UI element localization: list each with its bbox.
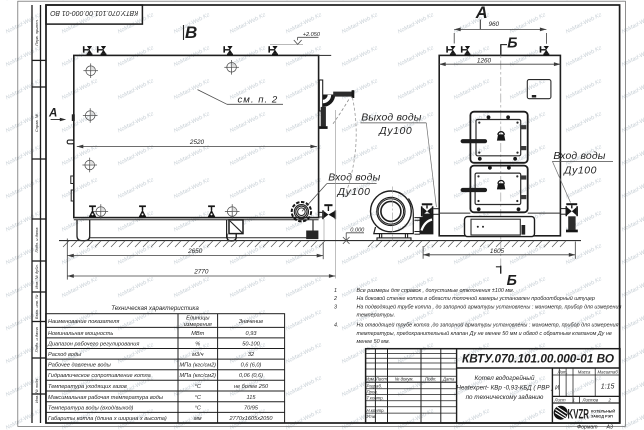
svg-text:Котел водогрейный: Котел водогрейный: [475, 374, 535, 382]
svg-text:Расход воды: Расход воды: [48, 352, 81, 358]
svg-text:960: 960: [488, 21, 499, 28]
svg-text:Н.контр.: Н.контр.: [367, 408, 385, 413]
svg-text:Габариты котла (длина х ширина: Габариты котла (длина х ширина х высота): [48, 416, 167, 422]
svg-text:Масштаб: Масштаб: [598, 369, 619, 374]
svg-text:На подводящей трубе котла ,: На подводящей трубе котла , до запорной …: [357, 303, 622, 310]
svg-text:температуры, предохранительный: температуры, предохранительный клапан Ду…: [357, 330, 612, 337]
svg-text:Максимальная рабочая температу: Максимальная рабочая температура воды: [48, 395, 163, 401]
svg-text:ЗАВОД РЭП: ЗАВОД РЭП: [591, 414, 613, 418]
svg-text:Выход воды: Выход воды: [361, 113, 422, 124]
svg-text:м3/ч: м3/ч: [192, 352, 203, 358]
svg-text:Справ. №: Справ. №: [34, 113, 39, 132]
svg-text:по техническому заданию: по техническому заданию: [466, 393, 544, 401]
svg-text:Гидравлическое сопротивление к: Гидравлическое сопротивление котла: [48, 373, 151, 379]
svg-text:Все размеры для справок , допу: Все размеры для справок , допустимые отк…: [357, 288, 515, 294]
svg-text:Лист: Лист: [554, 397, 566, 402]
svg-text:50-100: 50-100: [242, 341, 260, 347]
svg-text:Инв. № подл.: Инв. № подл.: [34, 378, 39, 403]
svg-text:не более 250: не более 250: [234, 384, 269, 390]
svg-text:32: 32: [248, 352, 255, 358]
svg-text:Утв.: Утв.: [367, 414, 377, 419]
svg-text:Heatexpert- КВр -0,93-КБД ( РВ: Heatexpert- КВр -0,93-КБД ( РВР ) И: [457, 384, 560, 391]
svg-text:менее 50 мм.: менее 50 мм.: [357, 339, 391, 345]
svg-text:2770х1605х2050: 2770х1605х2050: [229, 416, 274, 422]
svg-text:0,06 (0,6): 0,06 (0,6): [239, 373, 263, 379]
svg-text:На отводящей трубе котла ,до з: На отводящей трубе котла ,до запорной ар…: [357, 322, 619, 329]
svg-text:Перв. примен.: Перв. примен.: [34, 19, 39, 46]
svg-text:мм: мм: [194, 416, 202, 422]
svg-text:В: В: [185, 23, 197, 42]
svg-text:115: 115: [247, 395, 257, 401]
svg-text:Лист: Лист: [375, 377, 387, 382]
svg-text:1: 1: [334, 288, 337, 294]
svg-text:Лит.: Лит.: [557, 369, 568, 374]
svg-text:Подп.: Подп.: [425, 377, 436, 382]
svg-text:KVZR: KVZR: [568, 406, 590, 421]
svg-text:Разраб.: Разраб.: [367, 383, 383, 388]
svg-text:КВТУ.070.101.00.000-01 ВО: КВТУ.070.101.00.000-01 ВО: [462, 352, 615, 366]
svg-text:Вход воды: Вход воды: [553, 151, 605, 162]
svg-text:0,93: 0,93: [246, 331, 258, 337]
svg-text:°С: °С: [195, 384, 202, 390]
svg-text:МПа (кгс/см2): МПа (кгс/см2): [180, 363, 217, 369]
svg-text:Формат: Формат: [577, 424, 598, 430]
svg-text:Техническая характеристика: Техническая характеристика: [111, 305, 199, 312]
svg-text:70/95: 70/95: [244, 405, 259, 411]
svg-text:см. п. 2: см. п. 2: [238, 94, 279, 105]
svg-text:МВт: МВт: [191, 331, 204, 337]
svg-text:А: А: [475, 4, 488, 22]
svg-text:Б: Б: [507, 36, 517, 52]
svg-text:2520: 2520: [189, 139, 205, 146]
svg-text:Номинальная мощность: Номинальная мощность: [48, 331, 113, 337]
svg-text:Наименование показателя: Наименование показателя: [48, 319, 119, 325]
svg-text:1:15: 1:15: [601, 383, 615, 390]
svg-text:Вход воды: Вход воды: [328, 172, 380, 183]
svg-text:Температура уходящих газов: Температура уходящих газов: [48, 384, 127, 390]
svg-text:2: 2: [333, 296, 337, 302]
svg-text:Значение: Значение: [239, 319, 264, 325]
svg-text:№ докум.: № докум.: [395, 377, 414, 382]
svg-text:Ду100: Ду100: [378, 126, 412, 137]
svg-text:3: 3: [334, 304, 337, 310]
svg-text:Б: Б: [507, 273, 517, 289]
svg-text:Пров.: Пров.: [367, 390, 378, 395]
svg-text:1605: 1605: [490, 248, 505, 255]
svg-text:Дата: Дата: [442, 377, 455, 382]
svg-text:°С: °С: [195, 405, 202, 411]
svg-text:2650: 2650: [187, 248, 203, 255]
svg-text:Ду100: Ду100: [337, 187, 371, 198]
svg-text:Подп. и дата: Подп. и дата: [34, 327, 39, 353]
svg-text:Подп. и дата: Подп. и дата: [34, 227, 39, 253]
svg-text:Изм.: Изм.: [366, 377, 375, 382]
svg-text:0,6 (6,0): 0,6 (6,0): [241, 363, 262, 369]
svg-text:Взам. инв. №: Взам. инв. №: [34, 294, 39, 319]
svg-text:Инв. № дубл.: Инв. № дубл.: [34, 264, 39, 289]
svg-text:Листов: Листов: [582, 397, 599, 402]
svg-text:4.: 4.: [334, 323, 339, 329]
svg-text:КОТЕЛЬНЫЙ: КОТЕЛЬНЫЙ: [591, 409, 615, 413]
svg-text:Диапазон рабочего регулировани: Диапазон рабочего регулирования: [47, 341, 139, 347]
svg-text:Температура воды (вход/выход): Температура воды (вход/выход): [48, 405, 134, 411]
svg-text:А: А: [48, 107, 57, 120]
svg-text:Рабочее давление воды: Рабочее давление воды: [48, 363, 111, 369]
svg-text:Т.контр.: Т.контр.: [367, 396, 384, 401]
svg-text:1260: 1260: [477, 58, 492, 65]
svg-text:Масса: Масса: [578, 369, 591, 374]
svg-text:измерения: измерения: [184, 322, 212, 328]
svg-text:0.000: 0.000: [350, 228, 365, 234]
svg-text:А3: А3: [606, 424, 613, 430]
svg-text:МПа (кгс/см2): МПа (кгс/см2): [180, 373, 217, 379]
svg-text:температуры.: температуры.: [357, 313, 396, 319]
svg-text:Единицы: Единицы: [186, 316, 209, 322]
svg-text:На боковой стенке котла в обла: На боковой стенке котла в области топочн…: [357, 295, 595, 302]
svg-text:2770: 2770: [193, 268, 209, 275]
svg-text:Ду100: Ду100: [563, 165, 597, 176]
svg-text:°С: °С: [195, 395, 202, 401]
svg-text:КВТУ.070.101.00.000-01 ВО: КВТУ.070.101.00.000-01 ВО: [50, 9, 138, 18]
svg-text:+2.050: +2.050: [303, 32, 321, 38]
svg-text:%: %: [195, 341, 200, 347]
